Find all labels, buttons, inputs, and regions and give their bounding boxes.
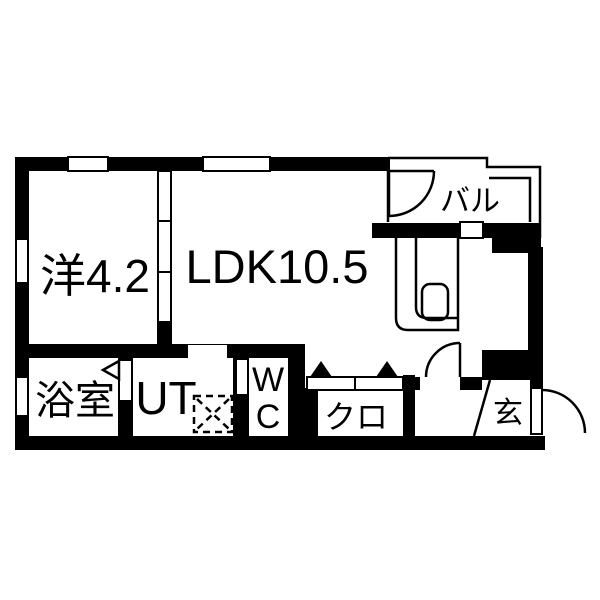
kitchen-sink-icon <box>422 284 448 320</box>
opening-ldk-to-hall <box>188 345 227 358</box>
wall-bottom <box>15 436 545 450</box>
wall-balcony-step <box>492 237 541 253</box>
bathroom-door-arrow-icon <box>103 361 119 379</box>
floorplan-drawing: 洋4.2 LDK10.5 バル 浴室 UT W C クロ 玄 <box>0 0 600 600</box>
window-top-west <box>68 157 108 171</box>
closet-door-triangle-icon-1 <box>310 361 332 377</box>
wall-right <box>528 247 543 352</box>
room-label-ldk: LDK10.5 <box>186 240 369 293</box>
wall-hall-door-right-jamb <box>460 377 482 390</box>
room-label-utility: UT <box>135 372 196 424</box>
room-label-entrance: 玄 <box>493 397 523 430</box>
wall-wc-right <box>288 344 305 437</box>
wall-hall-door-left-jamb <box>403 377 420 390</box>
washing-machine-pan-icon <box>194 396 232 432</box>
hall-door-swing <box>426 343 460 377</box>
closet-door-triangle-icon-2 <box>376 361 398 377</box>
kitchen-counter <box>396 238 458 330</box>
floorplan-canvas: 洋4.2 LDK10.5 バル 浴室 UT W C クロ 玄 <box>0 0 600 600</box>
sliding-door-panel-1 <box>158 171 171 222</box>
hall-door-arc <box>426 343 460 377</box>
window-top-ldk <box>203 157 270 171</box>
room-label-balcony: バル <box>440 185 500 218</box>
room-label-bathroom: 浴室 <box>35 379 115 423</box>
sliding-door-panel-2 <box>158 221 171 273</box>
room-label-toilet-c: C <box>256 398 281 436</box>
window-balcony-wall <box>460 222 483 238</box>
room-label-closet: クロ <box>324 399 388 435</box>
bathroom-door <box>119 360 132 401</box>
wall-balcony-bottom-right <box>483 223 541 238</box>
room-label-toilet-w: W <box>252 361 284 399</box>
sliding-door-panel-3 <box>158 272 171 322</box>
entrance-door-leaf <box>531 388 542 434</box>
room-label-western: 洋4.2 <box>40 250 150 302</box>
wall-middle-horizontal <box>15 344 303 358</box>
window-left-western-room <box>16 239 28 283</box>
wall-closet-left <box>303 388 318 436</box>
balcony-door-swing <box>389 171 434 216</box>
balcony-door-arc <box>389 171 434 216</box>
entrance-door-arc <box>542 390 585 433</box>
window-left-bathroom <box>16 377 28 416</box>
wall-balcony-bottom-left <box>372 223 460 238</box>
wall-entrance-door-jamb <box>530 364 543 390</box>
wc-door <box>236 359 248 395</box>
